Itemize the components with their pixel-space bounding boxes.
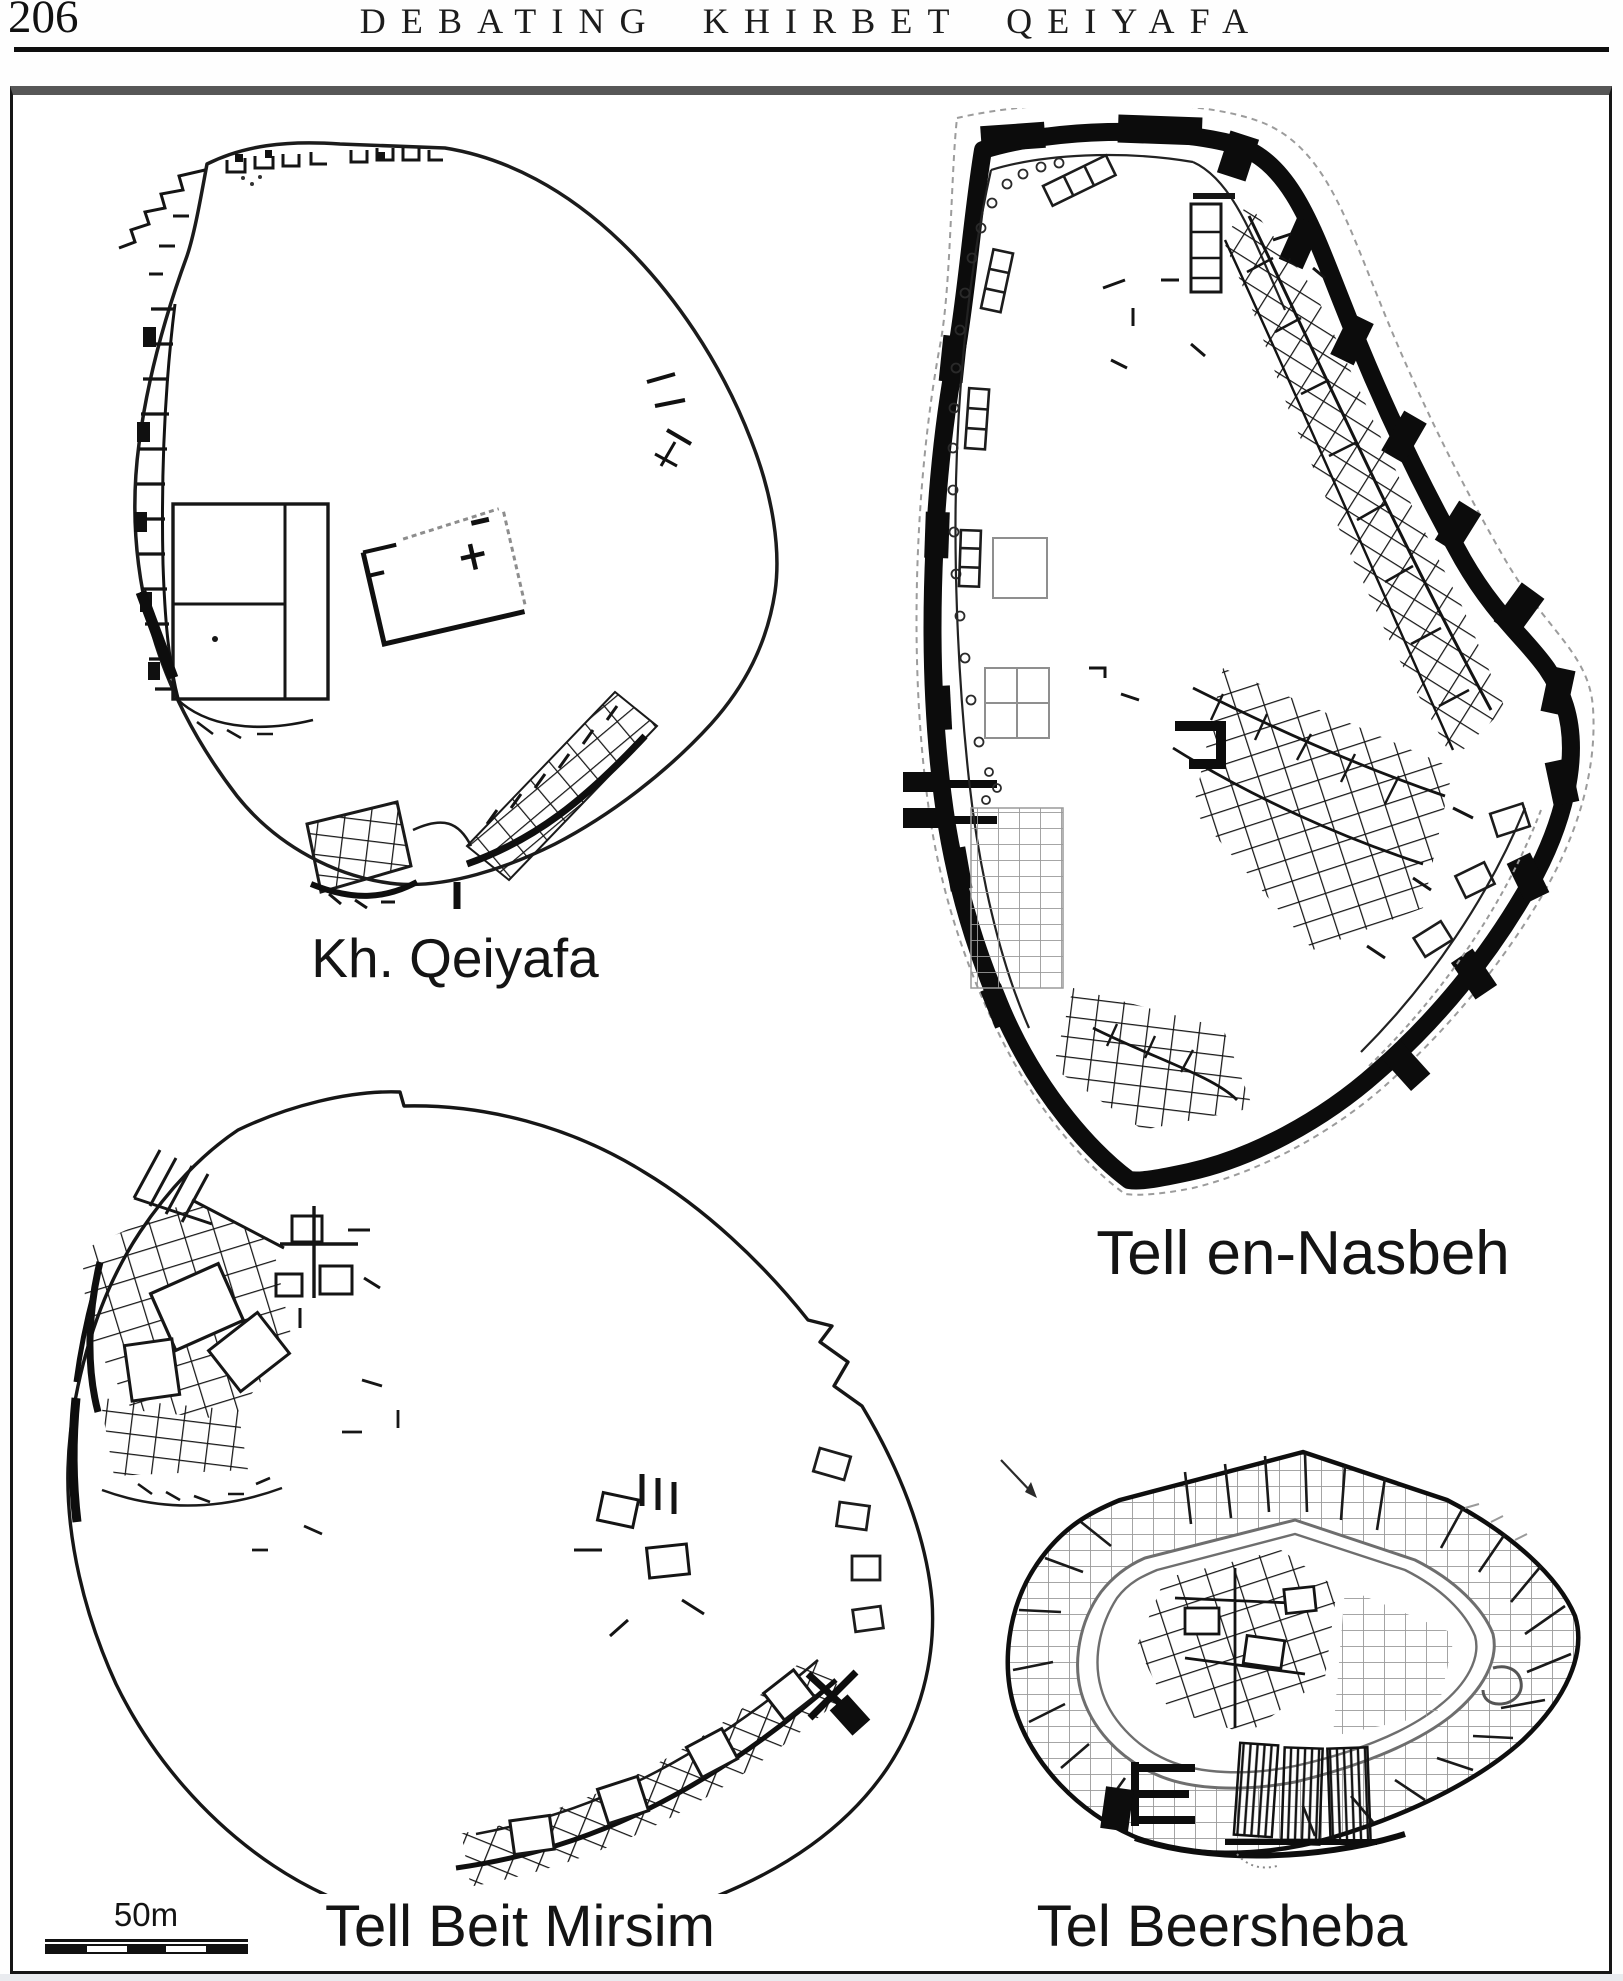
beersheba-storehouses <box>1225 1743 1377 1845</box>
scale-bar-line <box>45 1939 248 1942</box>
label-beersheba: Tel Beersheba <box>1037 1893 1408 1960</box>
running-title: DEBATING KHIRBET QEIYAFA <box>0 0 1623 42</box>
scale-segment <box>166 1946 206 1952</box>
scale-bar-label: 50m <box>114 1896 178 1934</box>
label-beit-mirsim: Tell Beit Mirsim <box>325 1893 715 1960</box>
site-plan-beit-mirsim <box>42 1080 940 1894</box>
beit-mirsim-west-wall <box>73 1398 77 1522</box>
label-qeiyafa: Kh. Qeiyafa <box>311 926 598 990</box>
book-page: 206 DEBATING KHIRBET QEIYAFA <box>0 0 1623 1981</box>
beersheba-drawing <box>1001 1452 1578 1868</box>
page-bottom-edge <box>0 1974 1623 1981</box>
scale-segment <box>127 1946 167 1952</box>
site-plan-beersheba <box>985 1438 1590 1878</box>
qeiyafa-outline <box>135 143 777 885</box>
scale-segment <box>87 1946 127 1952</box>
qeiyafa-drawing <box>119 143 777 909</box>
label-nasbeh: Tell en-Nasbeh <box>1096 1218 1510 1289</box>
beit-mirsim-drawing <box>68 1092 933 1894</box>
nasbeh-drawing <box>903 108 1594 1195</box>
header-rule <box>14 47 1609 52</box>
site-plan-qeiyafa <box>115 124 785 909</box>
scale-bar <box>45 1944 248 1954</box>
scale-segment <box>47 1946 87 1952</box>
site-plan-nasbeh <box>893 108 1598 1208</box>
scale-segment <box>206 1946 246 1952</box>
